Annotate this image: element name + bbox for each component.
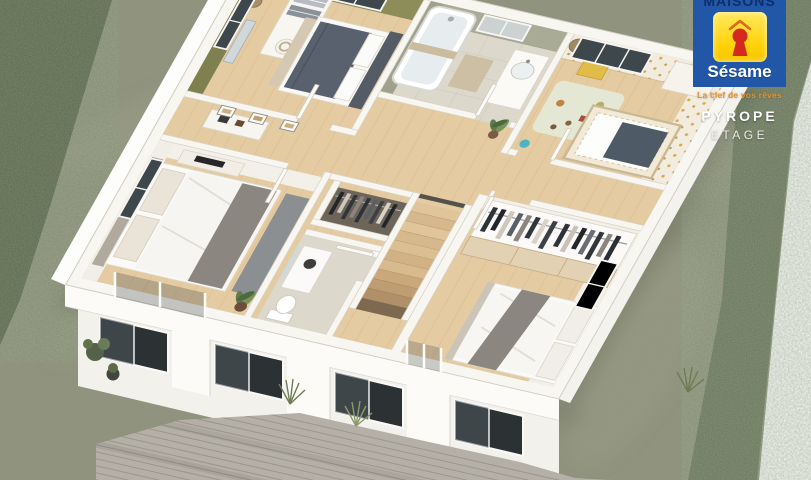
- keyhole-icon: [713, 12, 767, 62]
- floorplan-render-page: MAISONS Sésame La clef de vos rêves PYRO…: [0, 0, 811, 480]
- brand-caption-column: MAISONS Sésame La clef de vos rêves PYRO…: [693, 0, 786, 142]
- brand-name: Sésame: [693, 62, 786, 82]
- plan-name-label: PYROPE: [693, 108, 786, 124]
- sesame-logo: MAISONS Sésame: [693, 0, 786, 87]
- floorplan-3d-scene: [0, 0, 811, 480]
- brand-tagline: La clef de vos rêves: [693, 90, 786, 100]
- brand-top-text: MAISONS: [693, 0, 786, 9]
- floor-label: ETAGE: [693, 128, 786, 142]
